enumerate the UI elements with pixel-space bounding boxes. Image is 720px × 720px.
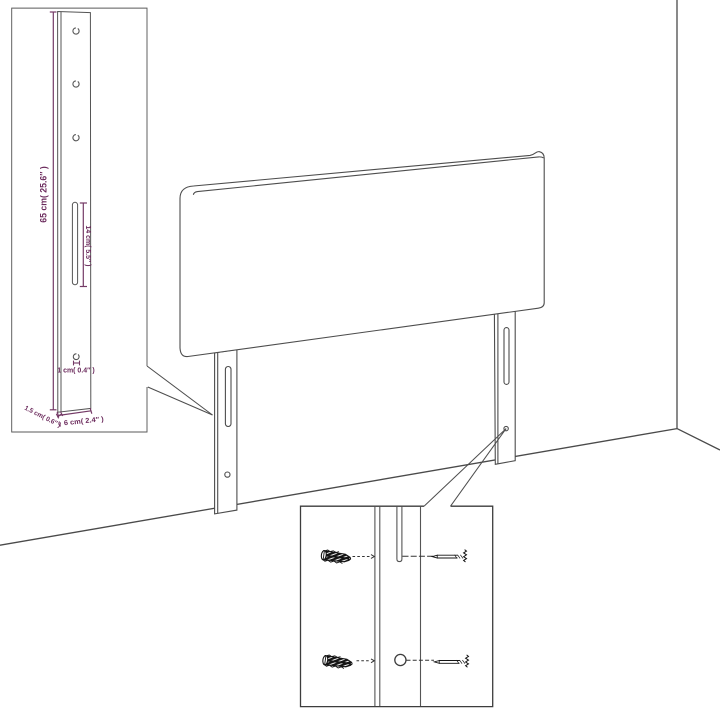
svg-text:14 cm( 5.5″ ): 14 cm( 5.5″ ) [84, 226, 93, 268]
svg-text:1 cm( 0.4″ ): 1 cm( 0.4″ ) [57, 367, 95, 374]
svg-text:65 cm( 25.6″ ): 65 cm( 25.6″ ) [38, 166, 48, 223]
